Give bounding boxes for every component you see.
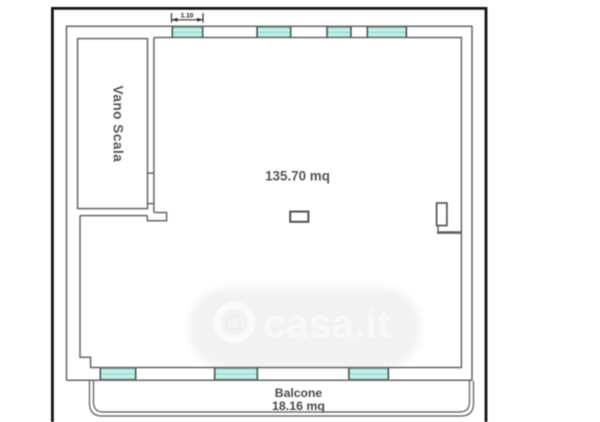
svg-text:135.70 mq: 135.70 mq (265, 169, 330, 184)
svg-text:18.16 mq: 18.16 mq (272, 399, 325, 413)
svg-text:casa.it: casa.it (263, 301, 391, 347)
svg-text:Vano Scala: Vano Scala (111, 86, 126, 163)
svg-text:Balcone: Balcone (275, 386, 323, 400)
svg-text:1.10: 1.10 (181, 13, 194, 20)
